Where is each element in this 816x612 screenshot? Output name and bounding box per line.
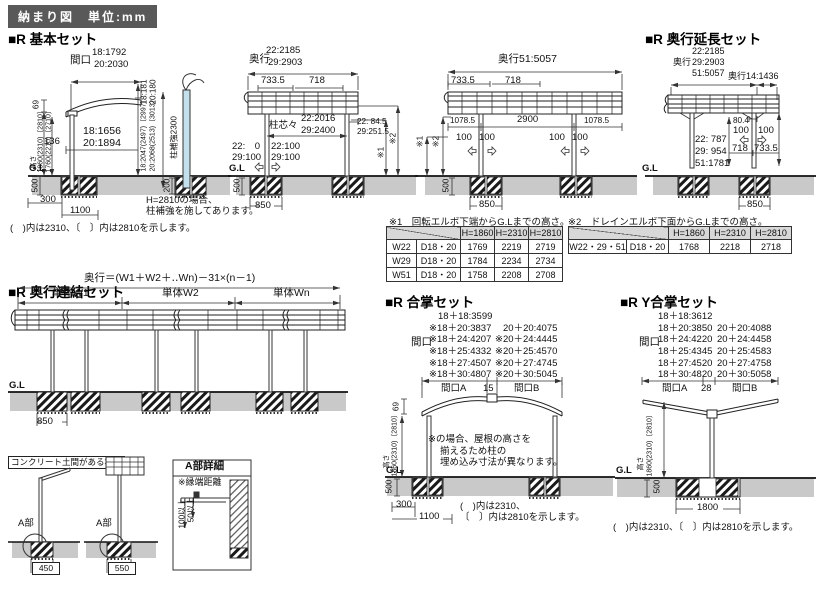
renketsu-formula: 奥行＝(W1＋W2＋‥Wn)－31×(n－1) xyxy=(84,273,255,284)
dim-span-b: 間口B xyxy=(514,384,539,394)
gassho-size: 20＋20:4075 xyxy=(503,324,557,334)
dim-left-29: 29:100 xyxy=(232,153,261,163)
table-header-row: H=1860 H=2310 H=2810 xyxy=(387,227,563,240)
dim-1078-right: 1078.5 xyxy=(584,116,609,125)
gl-label: G.L xyxy=(229,164,245,174)
mark-2: ※2 xyxy=(432,135,441,149)
footing xyxy=(676,478,740,499)
edge-distance-note: ※縁端距離 xyxy=(178,477,222,487)
unit-w2-label: 単体W2 xyxy=(162,288,199,299)
mark-2: ※2 xyxy=(389,132,398,146)
dim-okuyuki-14: 奥行14:1436 xyxy=(728,71,779,81)
dim-7335: 733.5 xyxy=(754,144,778,154)
table-cell: 2219 xyxy=(495,240,529,254)
dim-500: 500 xyxy=(442,177,451,195)
table-cell: W29 xyxy=(387,254,417,268)
table-cell: 2218 xyxy=(710,240,751,254)
direction-arrow-icons xyxy=(468,147,589,155)
dim-500: 500 xyxy=(653,478,662,496)
gassho-size: ※20＋30:5045 xyxy=(495,370,557,380)
dim-100: 100 xyxy=(479,133,495,143)
ygassho-size: 20＋27:4758 xyxy=(717,359,771,369)
arrow-right-icon xyxy=(581,147,589,155)
gassho-note-3: 埋め込み寸法が異なります。 xyxy=(440,458,563,468)
dim-right-29: 29:251.5 xyxy=(357,127,389,136)
dim-maguchi-20: 20:2030 xyxy=(94,60,128,70)
dim-right-22: 22: 84.5 xyxy=(357,117,387,126)
arrow-right-icon xyxy=(488,147,496,155)
dim-okuyuki-label: 奥行 xyxy=(673,57,691,67)
dim-span-a: 間口A xyxy=(662,384,687,394)
ygassho-size: 18＋24:4220 xyxy=(658,335,712,345)
page-title: 納まり図 単位:mm xyxy=(8,5,157,28)
table-header: H=2810 xyxy=(751,227,792,240)
gassho-drawing xyxy=(385,295,615,535)
note-h2810-1: H=2810の場合、 xyxy=(146,196,218,206)
dim-300: 300 xyxy=(40,195,56,205)
dim-ext-51: 51:5057 xyxy=(692,68,725,78)
ygassho-size: 18＋25:4345 xyxy=(658,347,712,357)
renketsu-drawing xyxy=(8,283,348,430)
ygassho-size: 18＋27:4520 xyxy=(658,359,712,369)
table-cell: 2718 xyxy=(751,240,792,254)
dim-850: 850 xyxy=(479,200,495,210)
dim-100: 100 xyxy=(758,126,774,136)
gassho-note-1: ※の場合、屋根の高さを xyxy=(428,435,531,445)
dim-850: 850 xyxy=(37,417,53,427)
dim-718: 718 xyxy=(732,144,748,154)
ygassho-size: 20＋30:5058 xyxy=(717,370,771,380)
table-cell: D18・20 xyxy=(417,240,461,254)
dim-100: 100 xyxy=(456,133,472,143)
dim-100-min: 100以上 xyxy=(178,498,187,530)
table-rotating-elbow-heights: H=1860 H=2310 H=2810 W22 D18・20 1769 221… xyxy=(386,226,563,282)
dim-mid-22: 22:100 xyxy=(271,142,300,152)
dim-okuyuki-22: 22:2185 xyxy=(266,46,300,56)
table-row: W22・29・51 D18・20 1768 2218 2718 xyxy=(569,240,792,254)
dim-1078-left: 1078.5 xyxy=(450,116,475,125)
table-cell: D18・20 xyxy=(417,254,461,268)
gl-label: G.L xyxy=(616,466,632,476)
gassho-size: ※18＋24:4207 xyxy=(429,335,491,345)
dim-718: 718 xyxy=(505,76,521,86)
gassho-size: ※18＋25:4332 xyxy=(429,347,491,357)
column xyxy=(710,418,714,478)
gl-label: G.L xyxy=(9,381,25,391)
dim-inner-20: 20:1894 xyxy=(83,138,121,149)
dim-height-label: 高さ xyxy=(637,457,646,471)
part-a-label: A部 xyxy=(96,519,112,529)
dim-550: 550 xyxy=(108,562,136,575)
table-diagonal-cell xyxy=(569,227,669,240)
table-cell: 2234 xyxy=(495,254,529,268)
dim-okuyuki-51: 奥行51:5057 xyxy=(498,54,557,65)
dim-gap-28: 28 xyxy=(701,384,712,394)
mark-1: ※1 xyxy=(416,135,425,149)
ygassho-size: 20＋25:4583 xyxy=(717,347,771,357)
dim-50-min: 50以上 xyxy=(187,497,196,523)
dim-1100: 1100 xyxy=(419,512,439,522)
table-row: W22 D18・20 1769 2219 2719 xyxy=(387,240,563,254)
dim-ext-22: 22:2185 xyxy=(692,46,725,56)
table-cell: 1758 xyxy=(461,268,495,282)
mark-1: ※1 xyxy=(377,146,386,160)
table-header-row: H=1860 H=2310 H=2810 xyxy=(569,227,792,240)
gassho-size: ※20＋27:4745 xyxy=(495,359,557,369)
table-header: H=1860 xyxy=(669,227,710,240)
gl-label: G.L xyxy=(642,164,658,174)
table-header: H=2310 xyxy=(495,227,529,240)
page: 納まり図 単位:mm ■R 基本セット ■R 奥行延長セット ■R 奥行連結セッ… xyxy=(0,0,816,612)
table-cell: 1768 xyxy=(669,240,710,254)
gl-label: G.L xyxy=(29,164,45,174)
ygassho-size: 18＋20:3850 xyxy=(658,324,712,334)
dim-height: 1860(2310)〔2810〕 xyxy=(646,415,655,477)
dim-h51: 51:1781 xyxy=(695,159,729,169)
dim-7335: 733.5 xyxy=(451,76,475,86)
table-drain-elbow-heights: H=1860 H=2310 H=2810 W22・29・51 D18・20 17… xyxy=(568,226,792,254)
arrow-left-icon xyxy=(255,163,263,171)
dim-chushin-label: 柱芯々 xyxy=(269,121,298,131)
ext-drawing xyxy=(645,40,816,215)
note-paren-2: 〔 〕内は2810を示します。 xyxy=(460,513,585,523)
dim-500: 500 xyxy=(233,177,242,195)
table-cell: W22・29・51 xyxy=(569,240,627,254)
basic-front-drawing xyxy=(28,46,233,216)
roof xyxy=(422,394,562,416)
arrow-left-icon xyxy=(468,147,476,155)
table-cell: D18・20 xyxy=(627,240,669,254)
table-header: H=2810 xyxy=(529,227,563,240)
arrow-left-icon xyxy=(561,147,569,155)
note-paren-y: ( )内は2310、〔 〕内は2810を示します。 xyxy=(613,523,798,533)
roof xyxy=(11,310,345,330)
dim-1800: 1800 xyxy=(697,503,718,513)
dim-maguchi-18: 18:1792 xyxy=(92,48,126,58)
table-row: W29 D18・20 1784 2234 2734 xyxy=(387,254,563,268)
dim-100: 100 xyxy=(549,133,565,143)
dim-2900: 2900 xyxy=(517,115,538,125)
gassho-size: 18＋18:3599 xyxy=(438,312,492,322)
gassho-size: ※18＋30:4807 xyxy=(429,370,491,380)
ground xyxy=(645,176,816,195)
dim-h22: 22: 787 xyxy=(695,135,727,145)
table-cell: 2708 xyxy=(529,268,563,282)
gassho-note-2: 揃えるため柱の xyxy=(440,447,506,457)
column xyxy=(51,330,307,392)
ygassho-size: 20＋24:4458 xyxy=(717,335,771,345)
gassho-size: ※20＋25:4570 xyxy=(495,347,557,357)
table-cell: 1784 xyxy=(461,254,495,268)
dim-right-18: 18:2047(2497)〔2997〕 xyxy=(140,108,149,172)
dim-inner-18: 18:1656 xyxy=(83,126,121,137)
dim-right-20: 20:2068(2513)〔3013〕 xyxy=(149,108,158,172)
ygassho-size: 20＋20:4088 xyxy=(717,324,771,334)
dim-maguchi-label: 間口 xyxy=(639,337,660,348)
dim-mid-29: 29:100 xyxy=(271,153,300,163)
gassho-size: ※18＋27:4507 xyxy=(429,359,491,369)
dim-136: 136 xyxy=(44,137,60,147)
table-cell: 2719 xyxy=(529,240,563,254)
dim-h29: 29: 954 xyxy=(695,147,727,157)
section-title-basic: ■R 基本セット xyxy=(8,28,97,48)
table-diagonal-cell xyxy=(387,227,461,240)
dim-okuyuki-29: 29:2903 xyxy=(268,58,302,68)
dim-100: 100 xyxy=(733,126,749,136)
dim-span-a: 間口A xyxy=(441,384,466,394)
table-cell: 2208 xyxy=(495,268,529,282)
column xyxy=(70,115,74,190)
part-a-label: A部 xyxy=(18,519,34,529)
gl-label: G.L xyxy=(386,466,402,476)
dim-500: 500 xyxy=(385,478,394,496)
unit-wn-label: 単体Wn xyxy=(273,288,310,299)
gassho-size: ※20＋24:4445 xyxy=(495,335,557,345)
detail-a-title: A部詳細 xyxy=(185,461,224,472)
dim-gap-15: 15 xyxy=(483,384,494,394)
dim-850: 850 xyxy=(255,201,271,211)
table-cell: W22 xyxy=(387,240,417,254)
dim-shin-22: 22:2016 xyxy=(301,114,335,124)
dim-850: 850 xyxy=(747,200,763,210)
roof xyxy=(664,95,779,113)
dim-100: 100 xyxy=(572,133,588,143)
dim-7335: 733.5 xyxy=(261,76,285,86)
note-paren-basic: ( )内は2310、〔 〕内は2810を示します。 xyxy=(10,224,195,234)
ygassho-size: 18＋18:3612 xyxy=(658,312,712,322)
pillar-reinforced xyxy=(183,74,204,188)
roof xyxy=(66,99,141,118)
table-header: H=1860 xyxy=(461,227,495,240)
table-cell: D18・20 xyxy=(417,268,461,282)
table-header: H=2310 xyxy=(710,227,751,240)
roof xyxy=(244,92,358,114)
dim-span-b: 間口B xyxy=(732,384,757,394)
dim-804: 80.4 xyxy=(733,116,749,125)
dim-450: 450 xyxy=(32,562,60,575)
dim-718: 718 xyxy=(309,76,325,86)
unit-w1-label: 単体W1 xyxy=(52,288,89,299)
dim-200: 200 xyxy=(163,178,172,194)
dim-maguchi-label: 間口 xyxy=(70,55,91,66)
table-cell: 2734 xyxy=(529,254,563,268)
dim-1100: 1100 xyxy=(70,206,90,216)
table-cell: 1769 xyxy=(461,240,495,254)
note-paren-1: ( )内は2310、 xyxy=(460,502,525,512)
dim-300: 300 xyxy=(396,500,412,510)
ygassho-size: 18＋30:4820 xyxy=(658,370,712,380)
dim-pillar: 柱補強2300 xyxy=(170,108,179,168)
dim-left-22: 22: 0 xyxy=(232,142,260,152)
dim-500: 500 xyxy=(31,177,40,195)
table-row: W51 D18・20 1758 2208 2708 xyxy=(387,268,563,282)
dim-ext-29: 29:2903 xyxy=(692,57,725,67)
arrow-right-icon xyxy=(272,163,280,171)
gassho-size: ※18＋20:3837 xyxy=(429,324,491,334)
dim-shin-29: 29:2400 xyxy=(301,126,335,136)
roof xyxy=(444,92,622,114)
table-cell: W51 xyxy=(387,268,417,282)
